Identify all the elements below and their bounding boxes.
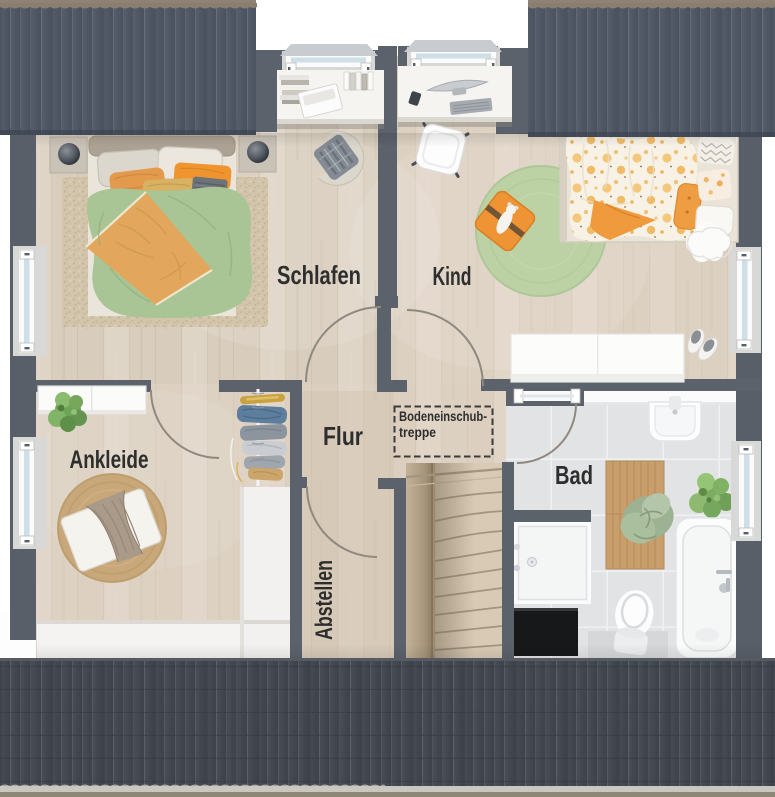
svg-text:Ankleide: Ankleide	[70, 446, 149, 474]
svg-text:treppe: treppe	[399, 425, 436, 440]
svg-text:Kind: Kind	[433, 261, 472, 291]
svg-text:Flur: Flur	[323, 421, 363, 451]
svg-text:Bad: Bad	[555, 460, 593, 490]
svg-text:Bodeneinschub-: Bodeneinschub-	[399, 409, 487, 424]
svg-text:Schlafen: Schlafen	[277, 260, 361, 290]
svg-text:Abstellen: Abstellen	[311, 560, 338, 640]
